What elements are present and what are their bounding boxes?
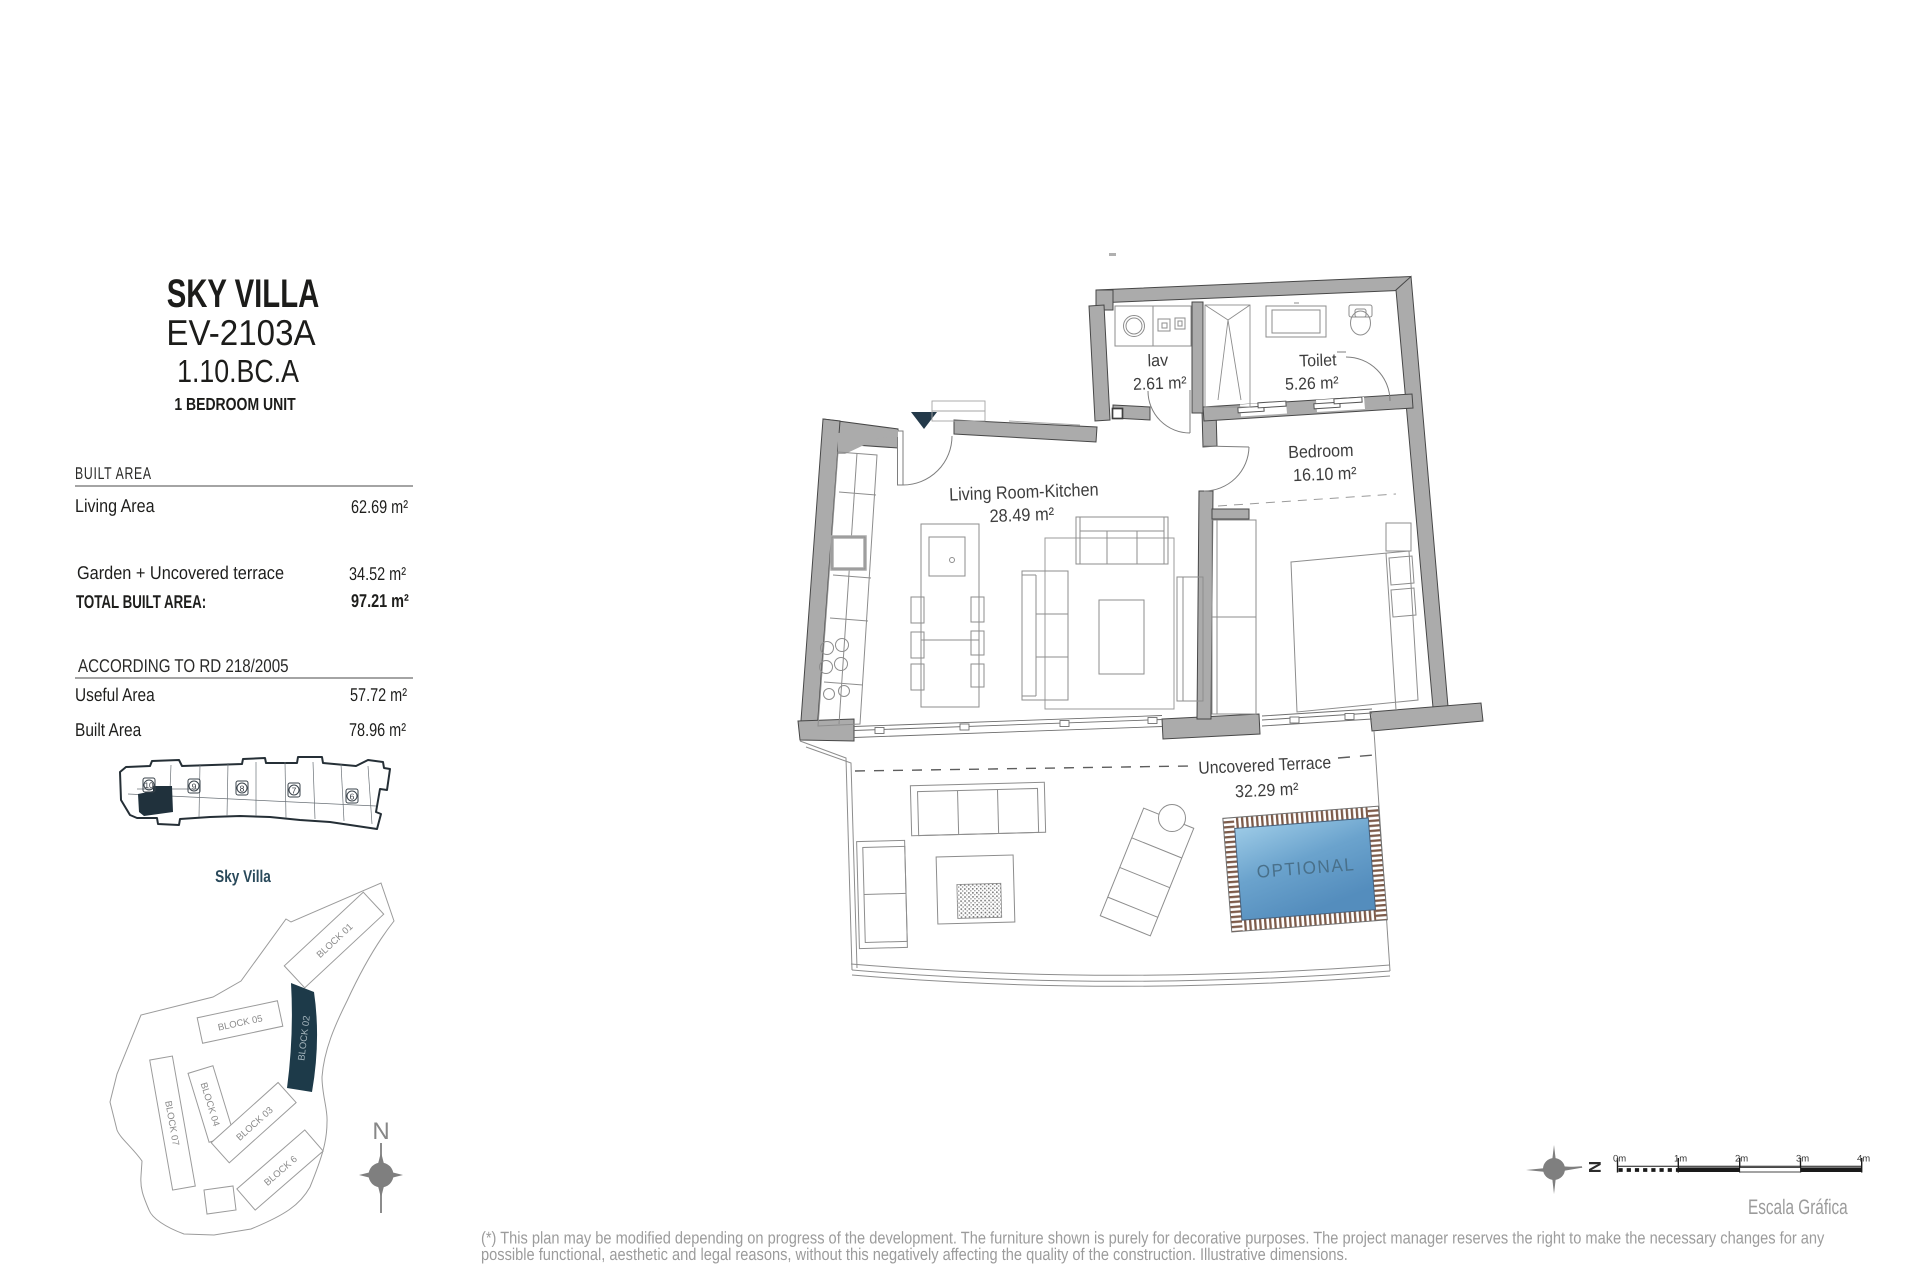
svg-text:1.10.BC.A: 1.10.BC.A (177, 353, 299, 389)
svg-text:Living Area: Living Area (75, 495, 155, 516)
svg-text:possible functional, aesthetic: possible functional, aesthetic and legal… (481, 1245, 1348, 1264)
svg-text:34.52 m²: 34.52 m² (349, 563, 406, 584)
svg-text:Escala Gráfica: Escala Gráfica (1748, 1196, 1848, 1219)
svg-text:9: 9 (192, 782, 197, 792)
svg-text:10: 10 (145, 781, 154, 790)
svg-text:N: N (372, 1118, 389, 1145)
svg-text:2m: 2m (1735, 1154, 1748, 1165)
svg-text:EV-2103A: EV-2103A (166, 312, 315, 353)
svg-text:TOTAL BUILT AREA:: TOTAL BUILT AREA: (76, 591, 206, 612)
svg-text:N: N (1585, 1161, 1604, 1173)
svg-text:lav: lav (1147, 351, 1169, 371)
svg-text:SKY VILLA: SKY VILLA (167, 272, 320, 316)
svg-text:78.96 m²: 78.96 m² (349, 719, 406, 740)
svg-text:32.29 m²: 32.29 m² (1235, 779, 1300, 802)
svg-text:Toilet: Toilet (1299, 350, 1337, 370)
svg-text:97.21 m²: 97.21 m² (351, 590, 409, 611)
svg-text:ACCORDING TO RD 218/2005: ACCORDING TO RD 218/2005 (78, 655, 289, 676)
svg-text:3m: 3m (1796, 1154, 1809, 1165)
svg-text:Garden + Uncovered terrace: Garden + Uncovered terrace (77, 562, 284, 583)
svg-text:57.72 m²: 57.72 m² (350, 684, 407, 705)
svg-text:Sky Villa: Sky Villa (215, 867, 271, 886)
svg-text:1m: 1m (1674, 1154, 1687, 1165)
svg-text:Uncovered Terrace: Uncovered Terrace (1198, 752, 1332, 778)
svg-text:0m: 0m (1613, 1154, 1626, 1165)
svg-text:62.69 m²: 62.69 m² (351, 496, 408, 517)
svg-text:Useful Area: Useful Area (75, 684, 155, 705)
svg-text:2.61 m²: 2.61 m² (1133, 373, 1188, 394)
svg-text:28.49 m²: 28.49 m² (989, 504, 1054, 526)
svg-text:5.26 m²: 5.26 m² (1285, 373, 1340, 394)
svg-text:BUILT AREA: BUILT AREA (75, 464, 152, 483)
svg-text:Bedroom: Bedroom (1288, 440, 1354, 462)
svg-text:16.10 m²: 16.10 m² (1293, 463, 1357, 485)
svg-text:7: 7 (292, 786, 297, 796)
svg-text:1 BEDROOM UNIT: 1 BEDROOM UNIT (174, 394, 296, 414)
svg-text:4m: 4m (1857, 1154, 1870, 1165)
svg-text:Living Room-Kitchen: Living Room-Kitchen (949, 479, 1099, 504)
svg-text:6: 6 (350, 792, 355, 802)
svg-text:8: 8 (240, 784, 245, 794)
svg-text:Built Area: Built Area (75, 719, 142, 740)
